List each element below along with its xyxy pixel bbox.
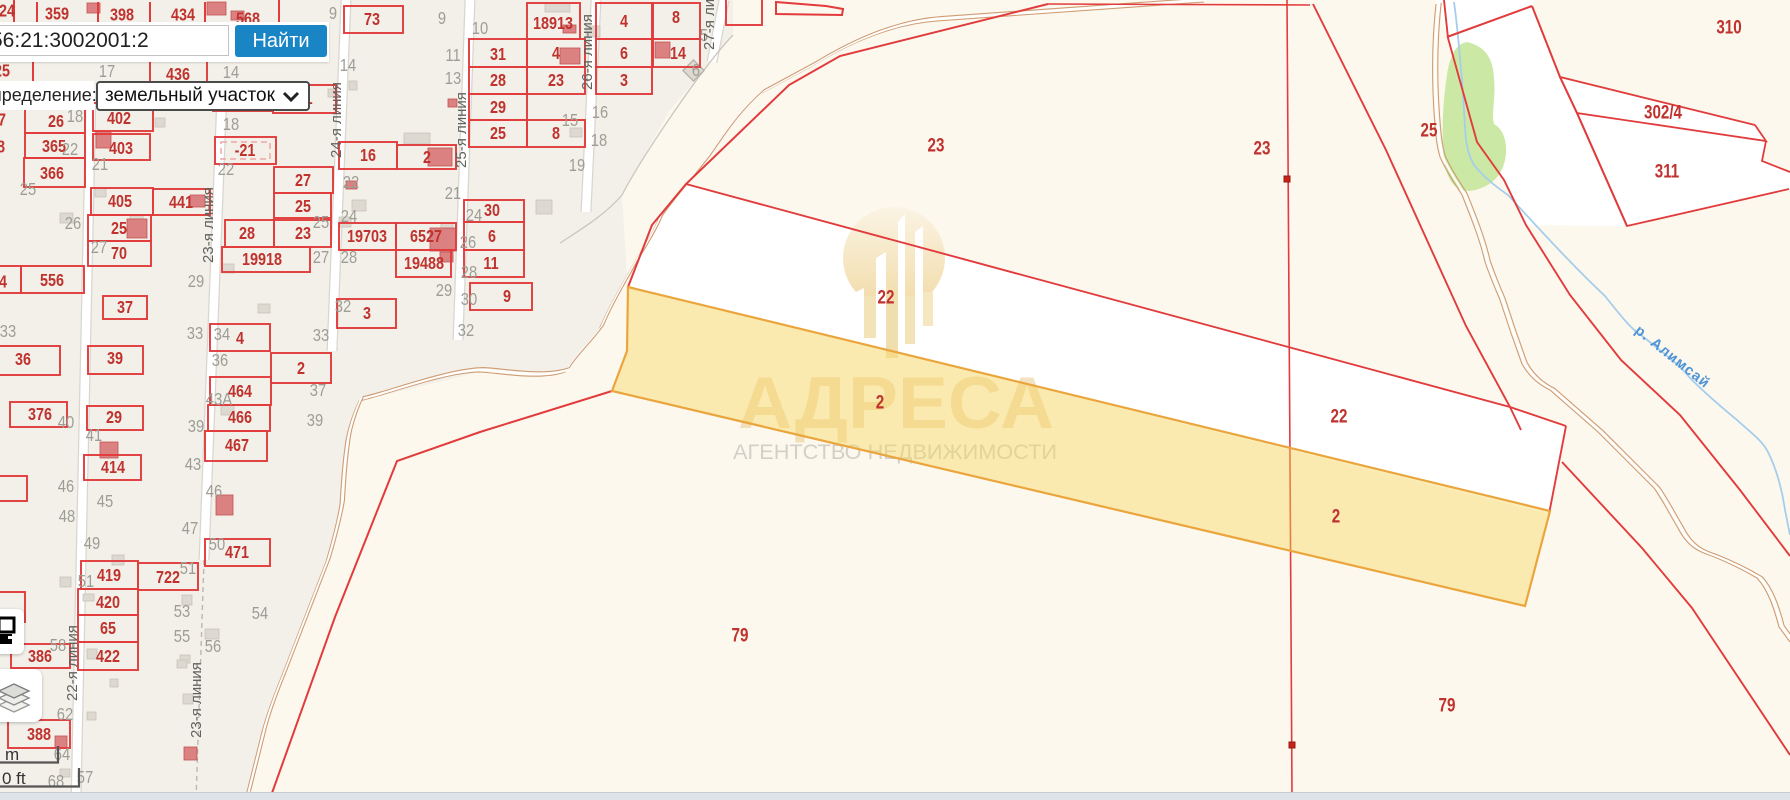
svg-text:79: 79 [1439,694,1456,716]
svg-text:28: 28 [239,224,255,244]
svg-text:22: 22 [878,286,895,308]
svg-text:11: 11 [445,46,460,66]
svg-text:23: 23 [295,224,311,244]
svg-text:39: 39 [107,349,123,369]
svg-text:6: 6 [692,61,700,81]
svg-text:19: 19 [569,156,585,176]
svg-text:414: 414 [101,458,125,478]
svg-text:62: 62 [57,705,73,725]
svg-text:32: 32 [458,321,474,341]
svg-text:65: 65 [100,619,116,639]
svg-text:51: 51 [180,559,196,579]
svg-text:405: 405 [108,192,132,212]
svg-text:22-я линия: 22-я линия [64,625,81,701]
svg-text:14: 14 [670,44,686,64]
svg-text:29: 29 [106,408,122,428]
svg-text:23: 23 [548,71,564,91]
svg-text:24: 24 [466,206,482,226]
svg-text:21: 21 [445,184,461,204]
svg-text:73: 73 [364,10,380,30]
svg-text:302/4: 302/4 [1644,101,1682,123]
svg-text:23: 23 [928,134,945,156]
svg-text:27: 27 [91,238,107,258]
svg-text:386: 386 [28,647,52,667]
svg-text:25-я линия: 25-я линия [453,92,470,168]
svg-text:3: 3 [363,304,371,324]
svg-text:25: 25 [490,124,506,144]
svg-text:39: 39 [307,411,323,431]
svg-text:8: 8 [552,124,560,144]
svg-text:2: 2 [876,391,884,413]
svg-text:53: 53 [174,602,190,622]
svg-text:6: 6 [620,44,628,64]
svg-text:55: 55 [174,627,190,647]
svg-text:27: 27 [295,171,311,191]
svg-text:4: 4 [0,272,7,292]
svg-text:27: 27 [0,110,6,130]
svg-text:24-я линия: 24-я линия [328,82,345,158]
svg-text:43: 43 [185,455,201,475]
svg-text:359: 359 [45,4,69,24]
svg-text:29: 29 [188,272,204,292]
svg-text:28: 28 [0,137,5,157]
svg-text:13: 13 [445,69,461,89]
svg-text:4: 4 [236,329,244,349]
svg-text:45: 45 [97,492,113,512]
svg-text:311: 311 [1655,160,1680,182]
svg-text:467: 467 [225,436,249,456]
svg-text:26: 26 [48,112,64,132]
svg-text:0 ft: 0 ft [2,769,26,788]
svg-text:37: 37 [117,298,133,318]
svg-text:22: 22 [62,140,78,160]
svg-text:25: 25 [295,197,311,217]
svg-text:422: 422 [96,647,120,667]
svg-text:30: 30 [484,201,500,221]
svg-text:56: 56 [205,637,221,657]
svg-text:-21: -21 [235,141,256,161]
svg-text:23-я линия: 23-я линия [200,187,217,263]
svg-text:402: 402 [107,109,131,129]
svg-text:50: 50 [209,535,225,555]
svg-text:9: 9 [503,287,511,307]
svg-text:11: 11 [483,254,498,274]
svg-text:28: 28 [490,71,506,91]
svg-text:33: 33 [187,324,203,344]
svg-text:376: 376 [28,405,52,425]
svg-text:25: 25 [313,213,329,233]
svg-text:4: 4 [620,12,628,32]
svg-text:29: 29 [490,98,506,118]
svg-text:m: m [5,745,19,764]
svg-text:9: 9 [329,4,337,24]
svg-text:31: 31 [490,45,506,65]
svg-text:466: 466 [228,408,252,428]
svg-text:41: 41 [86,426,102,446]
svg-text:419: 419 [97,566,121,586]
svg-text:25: 25 [20,180,36,200]
svg-text:3: 3 [620,71,628,91]
svg-text:22: 22 [343,173,359,193]
svg-text:23-я линия: 23-я линия [188,662,205,738]
svg-text:23: 23 [1254,137,1271,159]
svg-text:33: 33 [0,322,16,342]
svg-text:366: 366 [40,164,64,184]
svg-text:14: 14 [340,56,356,76]
svg-text:14: 14 [223,63,239,83]
svg-text:420: 420 [96,593,120,613]
svg-text:10: 10 [472,19,488,39]
svg-text:30: 30 [461,290,477,310]
svg-text:39: 39 [188,417,204,437]
svg-text:22: 22 [218,160,234,180]
svg-text:43А: 43А [206,390,232,410]
svg-text:47: 47 [182,519,198,539]
svg-text:27-я линия: 27-я линия [701,0,718,50]
svg-text:310: 310 [1716,16,1741,38]
svg-text:556: 556 [40,271,64,291]
svg-text:16: 16 [360,146,376,166]
svg-text:21: 21 [92,155,108,175]
svg-text:17: 17 [99,62,115,82]
svg-text:70: 70 [111,244,127,264]
svg-text:18: 18 [223,115,239,135]
svg-text:18: 18 [591,131,607,151]
svg-text:33: 33 [313,326,329,346]
svg-text:26: 26 [460,233,476,253]
svg-text:403: 403 [109,139,133,159]
svg-text:19703: 19703 [347,227,387,247]
svg-text:54: 54 [252,604,268,624]
svg-text:46: 46 [58,477,74,497]
svg-text:18913: 18913 [533,14,573,34]
svg-text:6527: 6527 [410,227,442,247]
svg-text:2: 2 [297,359,305,379]
svg-text:26-я линия: 26-я линия [579,14,596,90]
svg-text:27: 27 [313,248,329,268]
svg-text:22: 22 [1331,405,1348,427]
svg-text:2: 2 [423,148,431,168]
svg-text:32: 32 [335,297,351,317]
svg-text:15: 15 [562,111,578,131]
svg-text:722: 722 [156,568,180,588]
svg-text:40: 40 [58,413,74,433]
svg-text:19488: 19488 [404,254,444,274]
svg-text:24: 24 [341,207,357,227]
svg-text:29: 29 [436,281,452,301]
svg-text:25: 25 [111,219,127,239]
svg-text:28: 28 [341,248,357,268]
svg-text:6: 6 [488,227,496,247]
svg-text:48: 48 [59,507,75,527]
svg-text:51: 51 [78,572,94,592]
svg-text:24: 24 [0,1,15,21]
svg-text:79: 79 [732,624,749,646]
svg-text:36: 36 [15,350,31,370]
svg-text:2: 2 [1332,505,1340,527]
svg-text:46: 46 [206,482,222,502]
svg-text:26: 26 [65,214,81,234]
svg-text:28: 28 [461,263,477,283]
svg-text:36: 36 [212,351,228,371]
svg-text:34: 34 [214,325,230,345]
svg-text:25: 25 [0,61,10,81]
svg-text:37: 37 [310,381,326,401]
svg-text:49: 49 [84,534,100,554]
svg-text:441: 441 [169,193,193,213]
svg-text:19918: 19918 [242,250,282,270]
svg-text:4: 4 [552,44,560,64]
svg-text:16: 16 [592,103,608,123]
svg-text:8: 8 [672,8,680,28]
svg-text:471: 471 [225,543,249,563]
svg-text:9: 9 [438,9,446,29]
svg-text:25: 25 [1421,119,1438,141]
